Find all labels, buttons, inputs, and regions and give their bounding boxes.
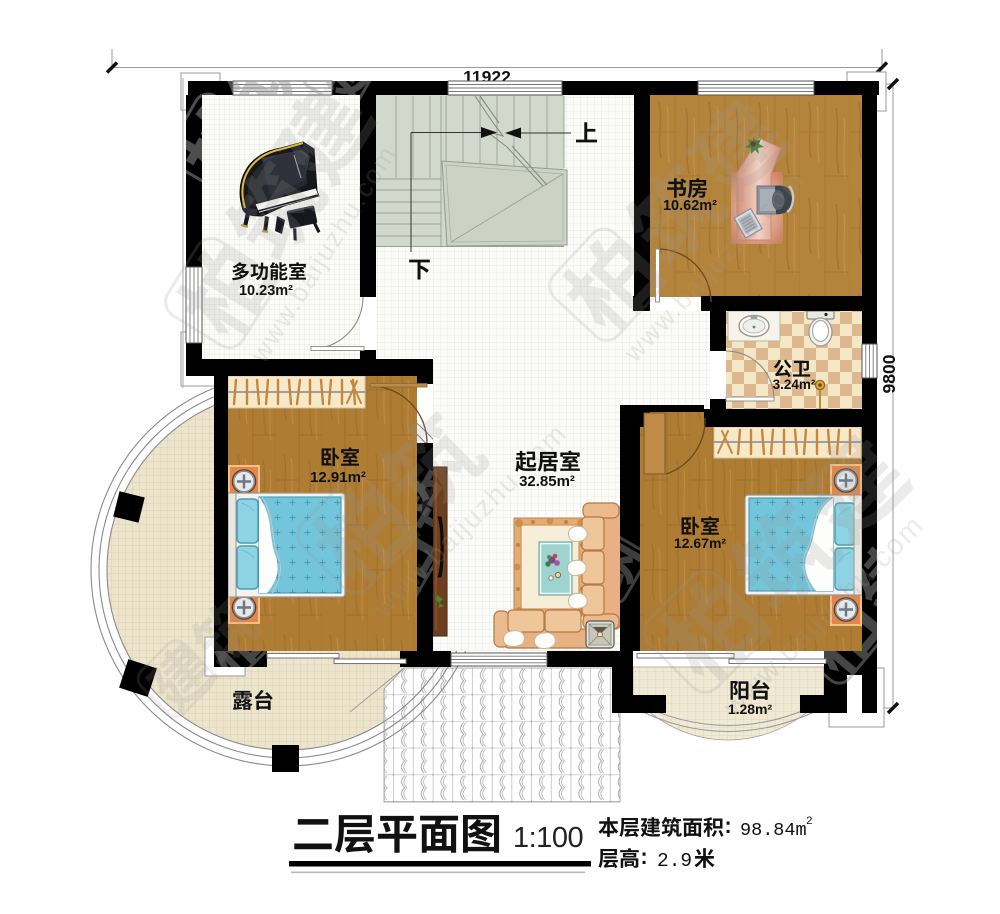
svg-text:10.62m²: 10.62m²: [663, 198, 717, 214]
svg-text:10.23m²: 10.23m²: [239, 283, 293, 299]
svg-text:9800: 9800: [879, 354, 899, 393]
svg-text:1:100: 1:100: [513, 822, 583, 854]
svg-text::: :: [638, 848, 651, 871]
svg-text:3.24m²: 3.24m²: [773, 377, 816, 392]
svg-text:1.28m²: 1.28m²: [728, 701, 773, 717]
svg-text:32.85m²: 32.85m²: [519, 473, 575, 490]
svg-text:12.91m²: 12.91m²: [310, 469, 366, 486]
svg-text:2: 2: [806, 816, 813, 828]
svg-text:98.84m: 98.84m: [740, 820, 807, 841]
svg-text::: :: [722, 817, 735, 840]
svg-text:12.67m²: 12.67m²: [674, 535, 726, 551]
svg-text:2.9: 2.9: [657, 850, 692, 872]
